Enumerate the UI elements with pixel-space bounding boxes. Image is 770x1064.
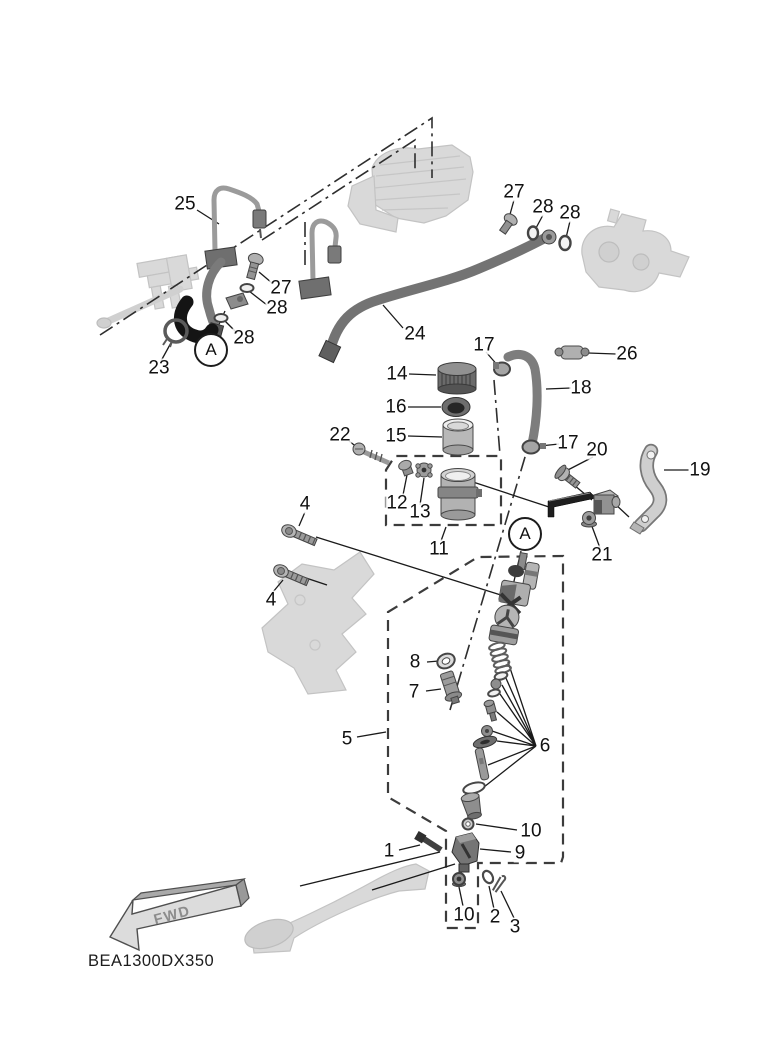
washer-2: [481, 869, 495, 885]
kit-spring: [488, 641, 511, 675]
bolt-20: [553, 464, 583, 492]
washer-28-top-1: [528, 227, 538, 240]
ghost-brake-caliper: [582, 209, 689, 291]
washer-28-left-2: [215, 314, 228, 322]
parts-diagram-page: FWD BEA1300DX350 25272828272828232417261…: [0, 0, 770, 1064]
clevis-joint-9: [452, 833, 479, 872]
ghost-abs-unit: [348, 145, 473, 232]
exploded-parts-diagram: FWD BEA1300DX350: [0, 0, 770, 1064]
hose-clamp-17-bottom: [523, 441, 540, 454]
washer-10-lower: [453, 873, 466, 887]
leader-lines: [161, 200, 689, 918]
cylinder-kit-6: [460, 641, 511, 820]
clamp-26: [555, 346, 589, 359]
reservoir-hose-18: [493, 354, 546, 453]
washer-28-top-2: [560, 236, 571, 250]
washer-28-left-1: [241, 284, 254, 292]
grommet-12: [397, 459, 414, 477]
reservoir-cup-15: [443, 419, 473, 455]
union-bolt-27-left: [243, 252, 264, 281]
kit-boot: [460, 791, 483, 820]
washer-8: [435, 651, 457, 671]
washer-10-upper: [463, 819, 474, 830]
fwd-arrow: FWD: [110, 879, 249, 950]
cotter-pin-3: [493, 874, 506, 893]
grommet-13: [416, 463, 432, 477]
mount-block-21: [594, 490, 620, 514]
kit-valve: [483, 699, 498, 722]
brake-hose-24: [319, 230, 556, 363]
reservoir-diaphragm-16: [442, 398, 470, 417]
clevis-pin-1: [414, 831, 441, 850]
diagram-code: BEA1300DX350: [88, 952, 214, 970]
kit-seat-washer: [472, 734, 498, 750]
kit-nut-1: [491, 679, 501, 689]
kit-pushrod: [475, 748, 489, 781]
kit-nut-2: [482, 726, 493, 737]
kit-ring-2: [487, 688, 500, 697]
union-bolt-27-top: [496, 211, 519, 235]
reservoir-cap-14: [438, 363, 476, 395]
nut-21: [582, 512, 597, 528]
reservoir-tank-11: [438, 469, 482, 521]
bolt-4-upper: [280, 523, 318, 548]
master-cylinder-body: [489, 550, 541, 647]
stay-bracket-19: [630, 451, 660, 534]
screw-22: [353, 443, 389, 463]
